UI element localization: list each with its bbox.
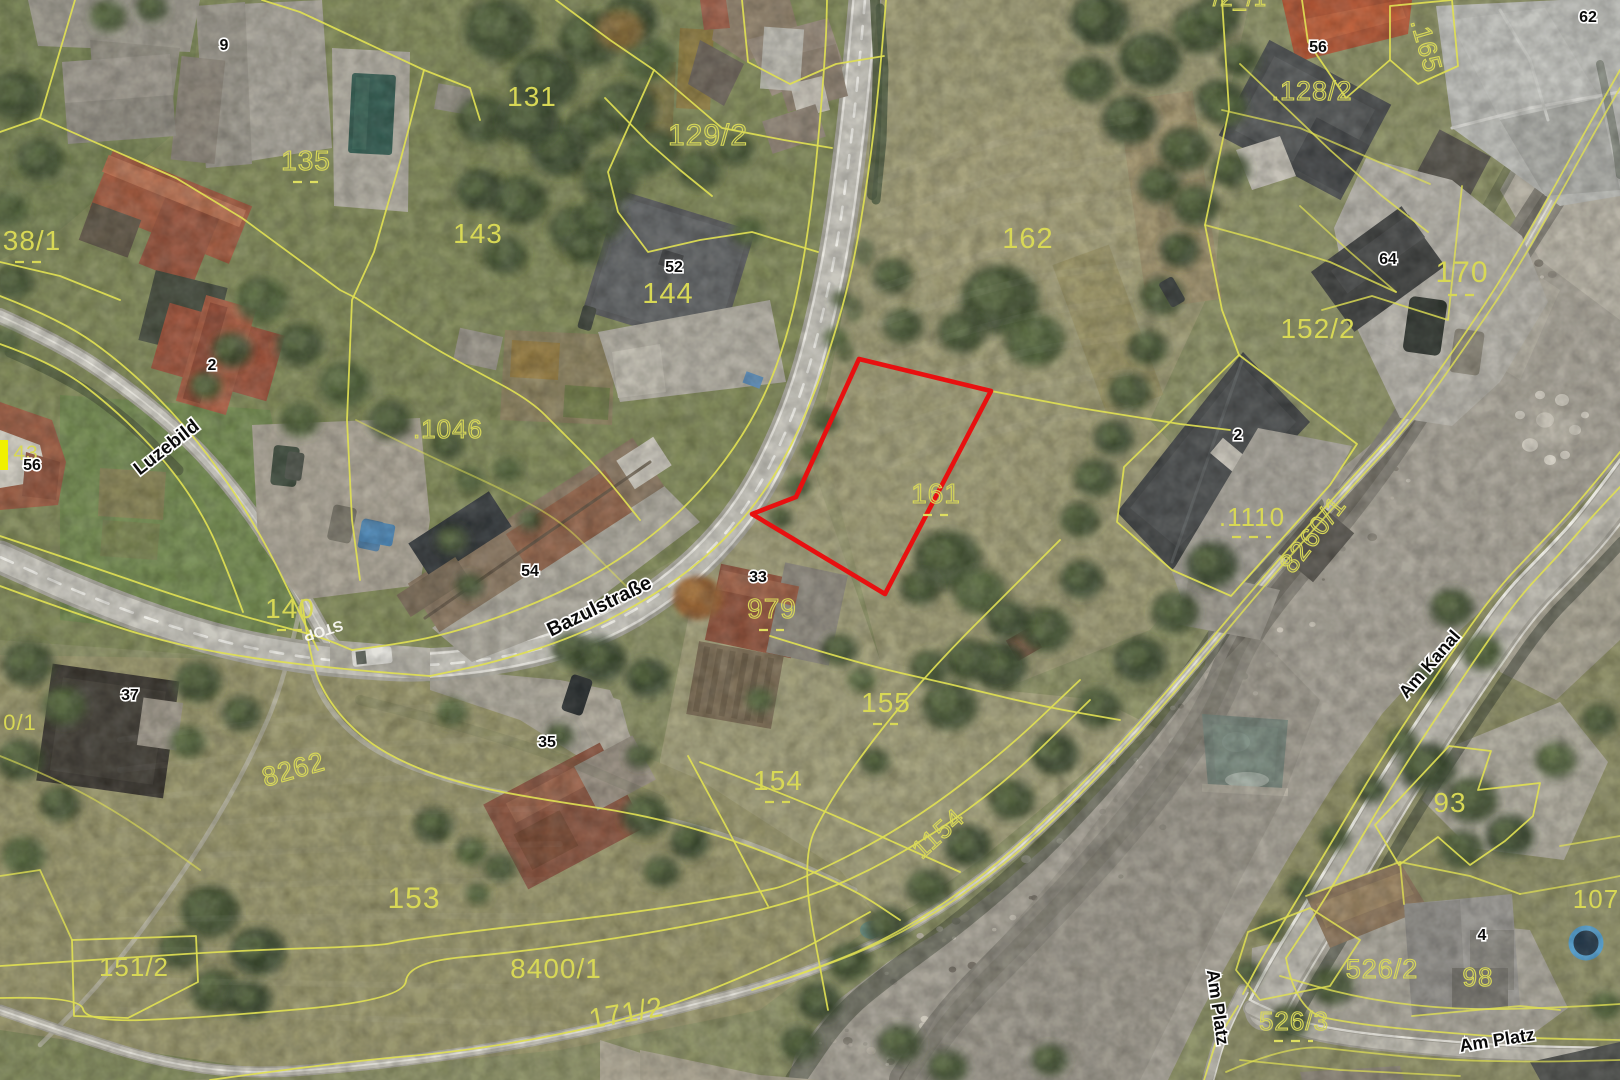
svg-text:129/2: 129/2 — [668, 119, 748, 152]
svg-text:33: 33 — [749, 569, 767, 586]
svg-text:.1046: .1046 — [413, 414, 483, 444]
svg-text:526/3: 526/3 — [1259, 1006, 1329, 1036]
svg-text:151/2: 151/2 — [99, 952, 169, 982]
svg-text:143: 143 — [453, 218, 503, 249]
svg-text:98: 98 — [1463, 962, 1494, 992]
svg-text:2: 2 — [1234, 427, 1243, 444]
svg-text:8400/1: 8400/1 — [510, 953, 602, 984]
svg-text:0/1: 0/1 — [3, 710, 37, 735]
svg-text:38/1: 38/1 — [3, 225, 62, 256]
svg-text:93: 93 — [1433, 787, 1466, 818]
svg-text:2: 2 — [208, 357, 217, 374]
svg-text:56: 56 — [1309, 39, 1327, 56]
svg-text:62: 62 — [1579, 9, 1597, 26]
svg-text:.128/2: .128/2 — [1271, 76, 1352, 106]
svg-text:154: 154 — [753, 765, 803, 796]
svg-text:526/2: 526/2 — [1346, 954, 1419, 984]
svg-text:64: 64 — [1379, 251, 1397, 268]
svg-text:140: 140 — [265, 593, 315, 624]
svg-text:155: 155 — [861, 687, 911, 718]
svg-text:161: 161 — [911, 478, 961, 509]
svg-text:9: 9 — [220, 37, 229, 54]
svg-text:54: 54 — [521, 563, 539, 580]
svg-text:/2_/1: /2_/1 — [1213, 0, 1267, 11]
svg-text:107: 107 — [1573, 884, 1619, 914]
svg-text:162: 162 — [1002, 223, 1053, 255]
svg-text:170: 170 — [1435, 256, 1488, 289]
svg-text:37: 37 — [121, 687, 139, 704]
svg-text:144: 144 — [642, 278, 693, 310]
svg-text:135: 135 — [281, 145, 331, 176]
svg-text:.1110: .1110 — [1219, 502, 1285, 532]
svg-text:52: 52 — [665, 259, 683, 276]
svg-text:56: 56 — [23, 457, 41, 474]
svg-text:4: 4 — [1478, 927, 1487, 944]
svg-text:979: 979 — [747, 593, 797, 624]
svg-text:131: 131 — [507, 81, 557, 112]
svg-text:35: 35 — [538, 734, 556, 751]
svg-text:153: 153 — [387, 882, 440, 915]
svg-text:152/2: 152/2 — [1280, 313, 1355, 344]
